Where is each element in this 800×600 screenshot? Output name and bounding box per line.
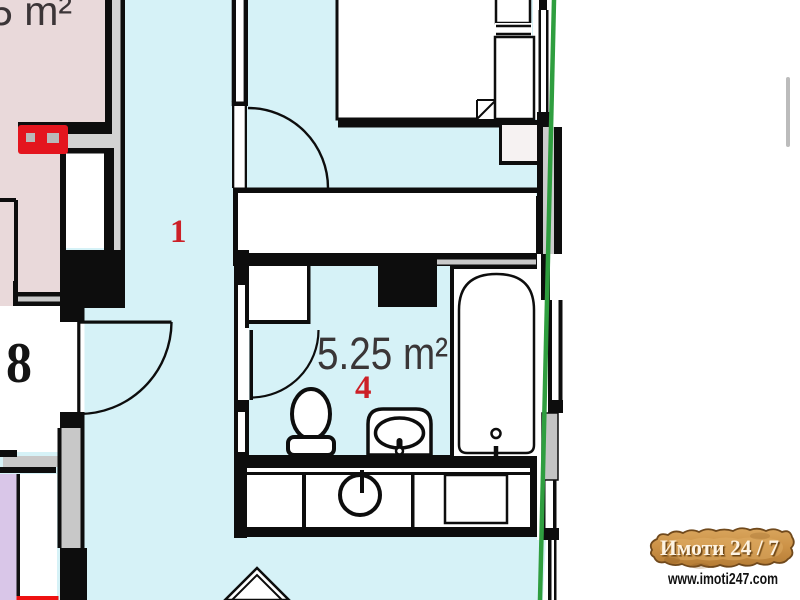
svg-text:5 m²: 5 m² — [0, 0, 72, 34]
svg-text:8: 8 — [6, 332, 32, 395]
svg-text:www.imoti247.com: www.imoti247.com — [667, 571, 778, 588]
svg-text:4: 4 — [355, 370, 372, 406]
svg-text:Имоти 24 / 7: Имоти 24 / 7 — [660, 535, 779, 560]
svg-text:1: 1 — [170, 214, 187, 250]
svg-text:5.25 m²: 5.25 m² — [317, 328, 448, 379]
